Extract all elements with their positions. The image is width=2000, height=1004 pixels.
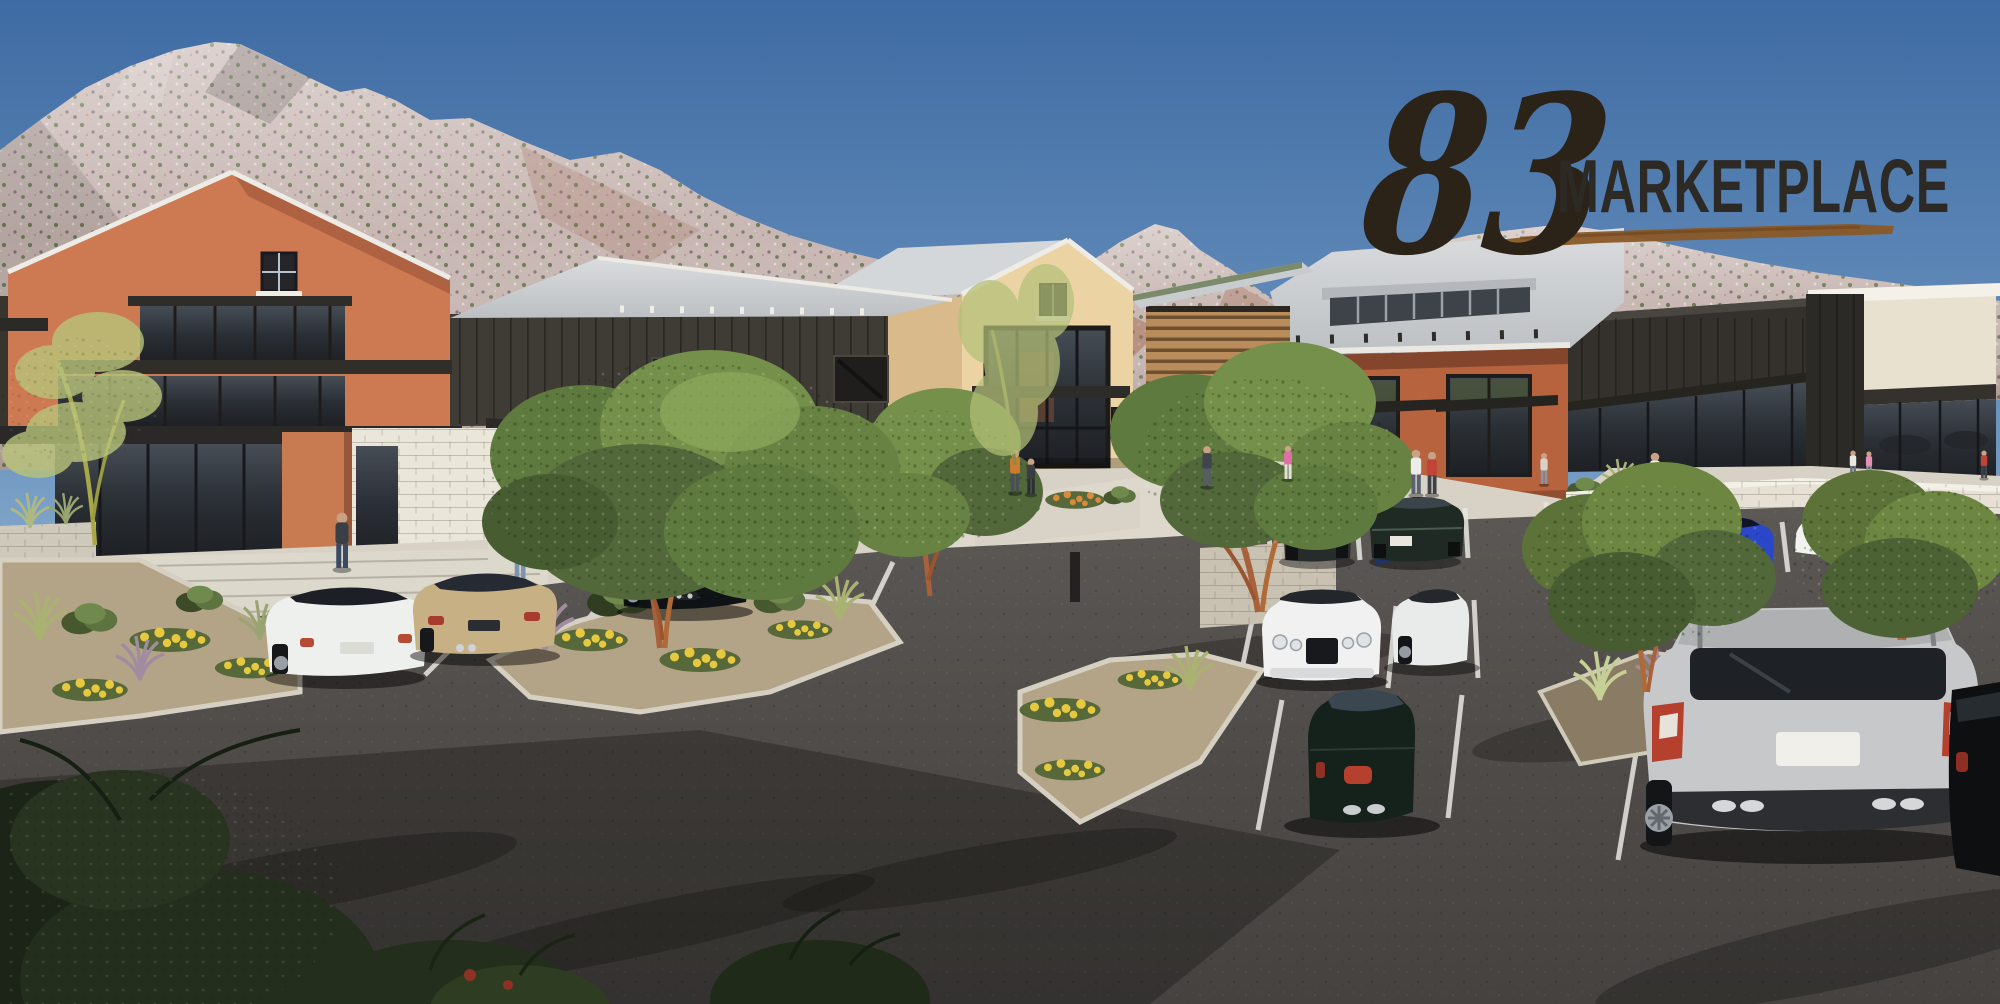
building-far-right-cream: [1806, 283, 2000, 484]
entry-door: [356, 446, 398, 560]
logo-wordmark: MARKETPLACE: [1557, 144, 1950, 228]
car-white-coupe-rear: [265, 587, 427, 689]
bollard-2: [1070, 552, 1080, 602]
glazing-upper-left: [140, 306, 345, 362]
canopy-upper: [128, 296, 352, 306]
scene: 83 MARKETPLACE: [0, 0, 2000, 1004]
car-black-vehicle-edge: [1949, 682, 2000, 876]
car-gold-coupe-rear: [410, 573, 560, 666]
attic-window-left: [256, 253, 302, 297]
rendering-canvas: 83 MARKETPLACE: [0, 0, 2000, 1004]
car-white-luxury-coupe-front: [1256, 590, 1388, 692]
wall-opening-2: [834, 356, 888, 402]
storefront-window-2: [1448, 376, 1530, 475]
